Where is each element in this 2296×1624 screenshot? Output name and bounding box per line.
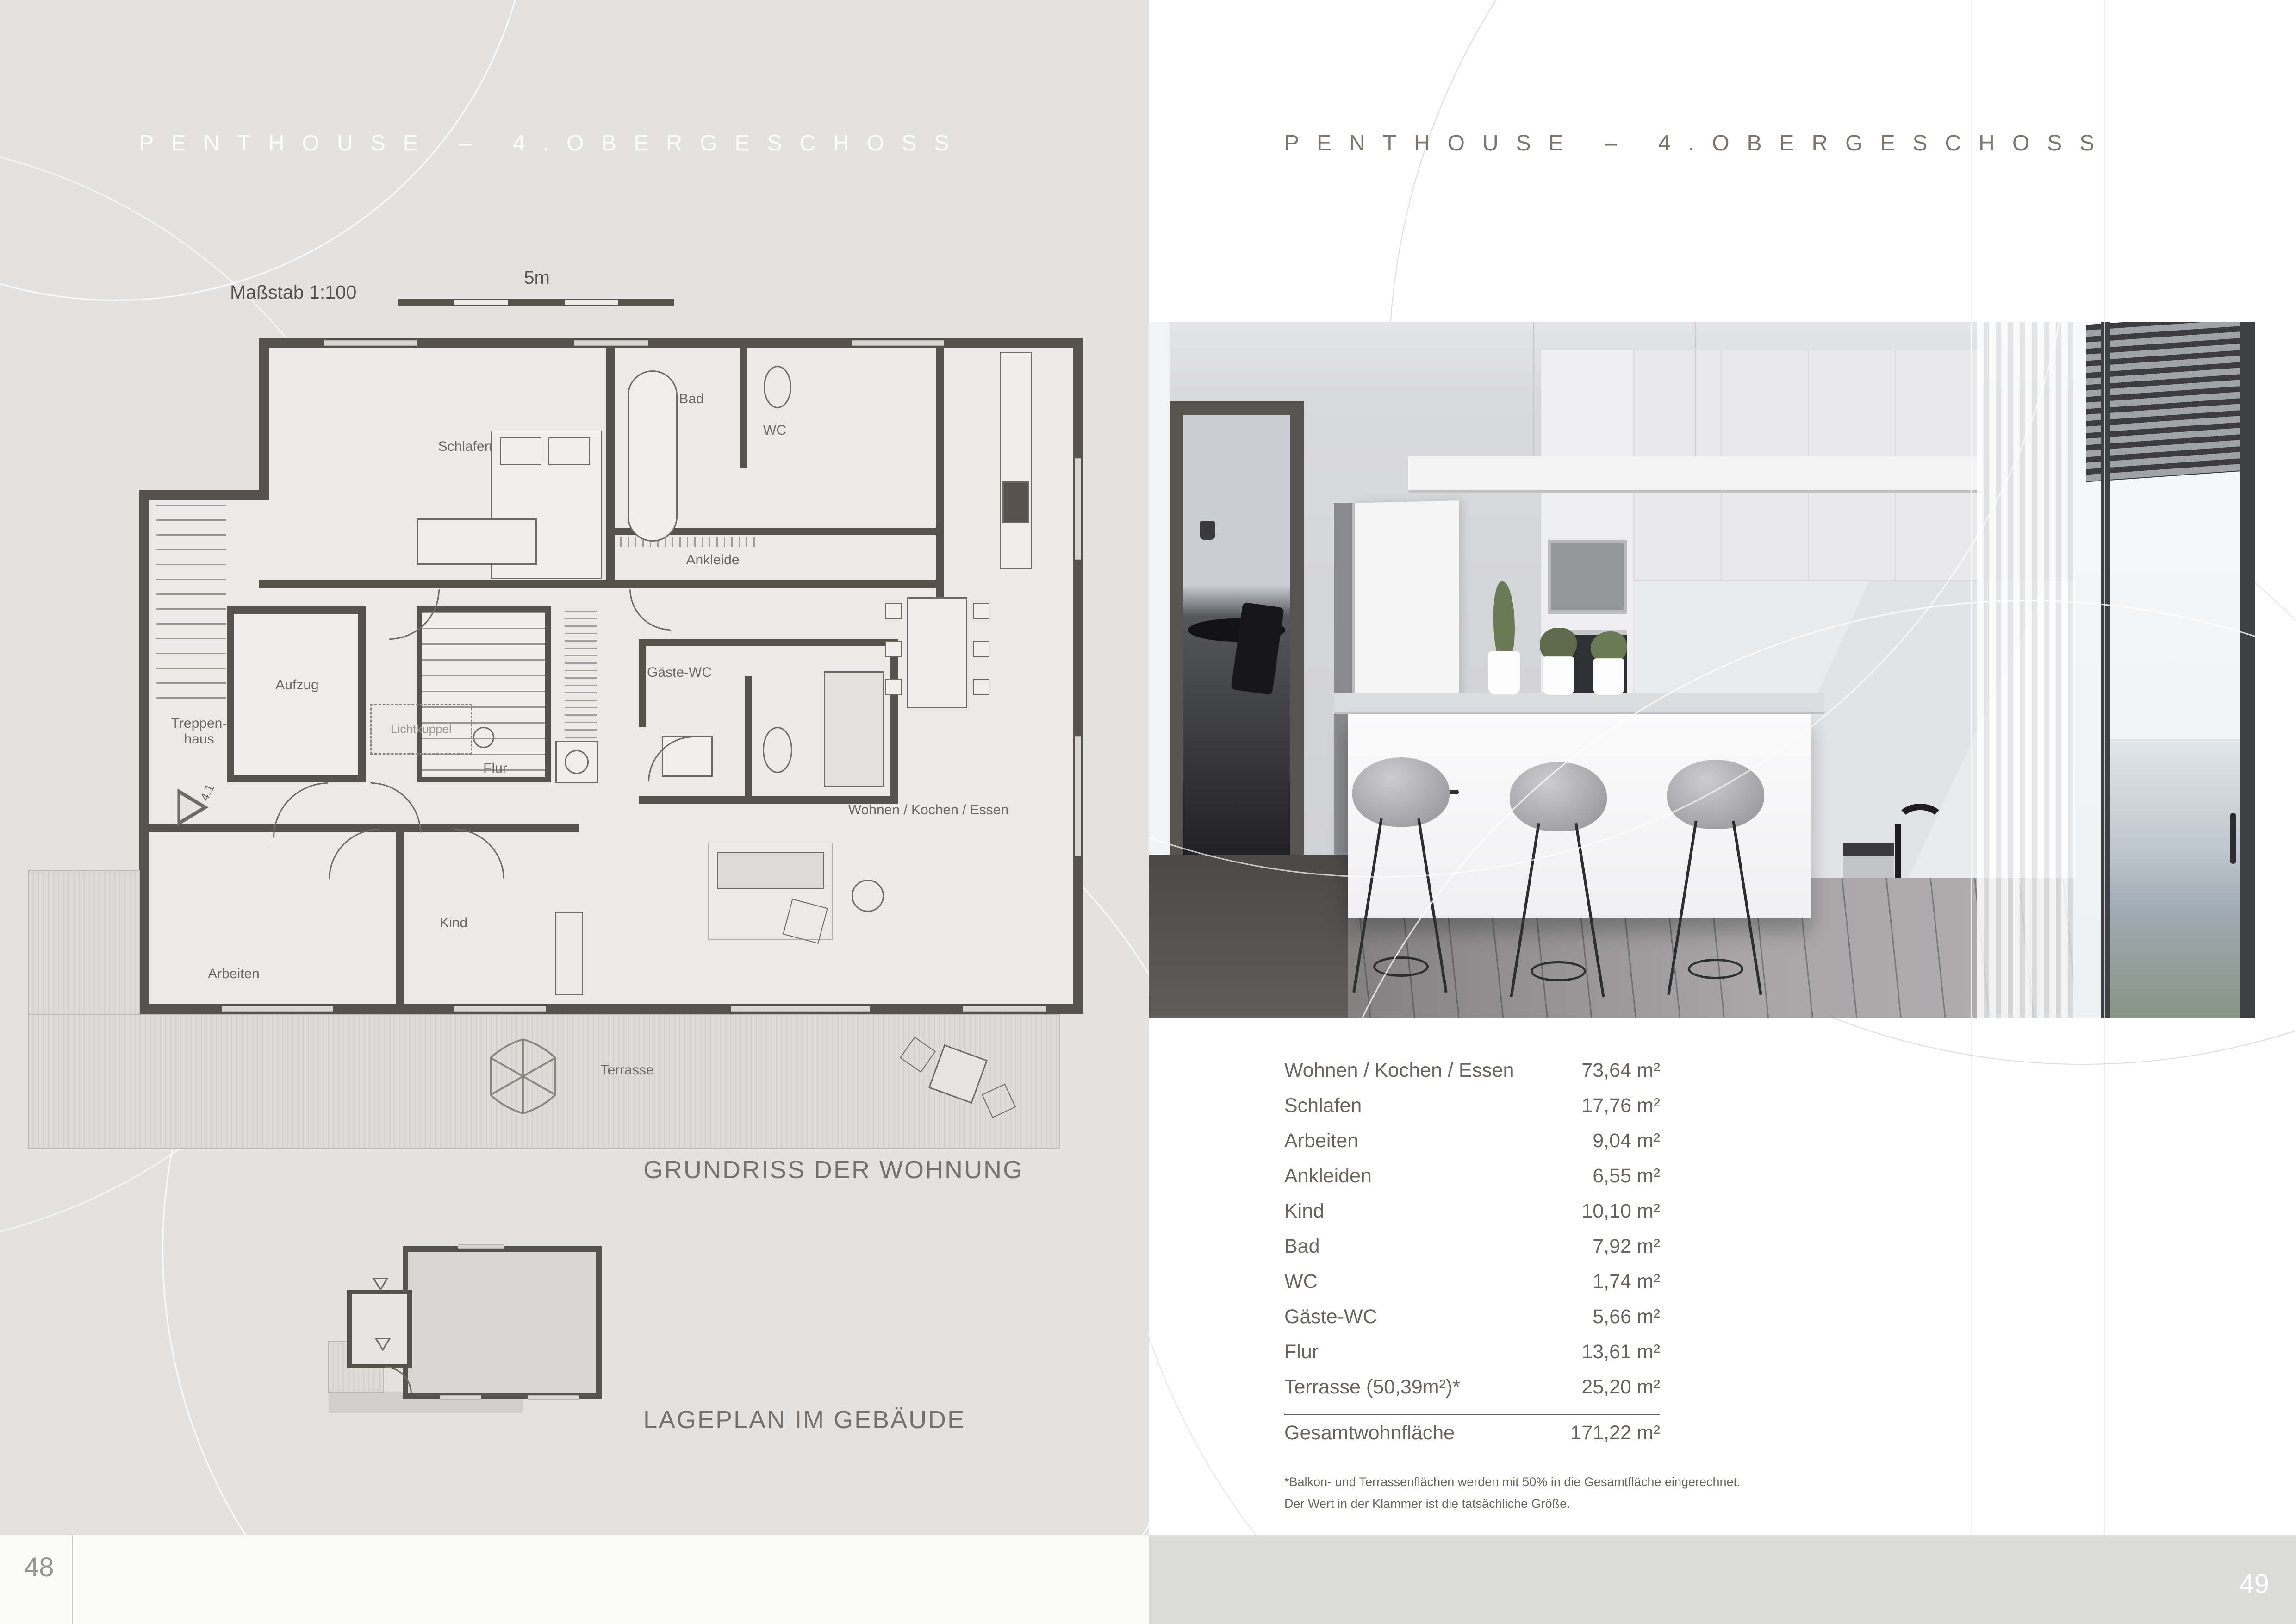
room-label-treppenhaus: Treppen-haus [162,716,236,747]
sofa [717,852,824,889]
pillow [548,437,590,465]
area-label: Gäste-WC [1284,1305,1377,1328]
area-row: Kind10,10 m² [1284,1200,1660,1235]
area-value: 10,10 m² [1581,1200,1660,1223]
area-label: Kind [1284,1200,1324,1223]
page-number: 48 [24,1552,54,1583]
area-value: 5,66 m² [1593,1305,1660,1328]
stool-seat [1667,760,1764,829]
area-value: 25,20 m² [1581,1376,1660,1399]
sheer-curtain [1977,322,2075,1018]
right-page: PENTHOUSE – 4.OBERGESCHOSS [1149,0,2296,1624]
footnote-line: *Balkon- und Terrassenflächen werden mit… [1284,1471,1741,1493]
brochure-spread: { "left_page": { "title": "PENTHOUSE – 4… [0,0,2296,1624]
window [458,1244,504,1249]
area-row: WC1,74 m² [1284,1270,1660,1305]
decorative-line [1971,322,1972,1018]
page-number: 49 [2239,1568,2269,1599]
chair [885,641,902,657]
area-label: Terrasse (50,39m²)* [1284,1376,1460,1399]
wall-segment [639,639,898,646]
penthouse-unit [403,1246,602,1399]
stool-footrest [1373,956,1429,977]
window [963,1006,1046,1012]
pendant-cord [1533,322,1534,461]
terrace-area [28,870,140,1015]
wall-segment [606,338,615,588]
window [1075,736,1081,856]
room-label-gaeste-wc: Gäste-WC [647,665,712,681]
stair-post [473,727,494,748]
elevator-shaft [227,606,366,782]
room-areas-table: Wohnen / Kochen / Essen73,64 m² Schlafen… [1284,1059,1660,1455]
room-label-wohnen: Wohnen / Kochen / Essen [848,802,1008,818]
wall-segment [890,639,898,804]
window [1075,458,1081,560]
window [324,340,417,346]
decorative-line [1971,0,1972,322]
room-label-arbeiten: Arbeiten [208,966,260,982]
wall-segment [396,824,404,1004]
bar-stool [1662,760,1769,1018]
bathtub [628,370,678,542]
window-frame-post [2240,322,2255,1018]
umbrella-icon [477,1030,569,1123]
scale-distance-label: 5m [481,268,592,288]
window [574,340,648,346]
faucet-arc [1895,804,1946,843]
chair [973,641,989,657]
page-title: PENTHOUSE – 4.OBERGESCHOSS [139,131,966,156]
window [440,1395,481,1400]
area-value: 1,74 m² [1593,1270,1660,1293]
total-row: Gesamtwohnfläche171,22 m² [1284,1415,1660,1455]
toilet [764,366,791,408]
total-value: 171,22 m² [1570,1422,1660,1444]
window-handle [2230,813,2236,864]
terrace-door [731,1006,870,1012]
footer-band [0,1535,1149,1624]
area-label: Flur [1284,1341,1319,1363]
area-value: 9,04 m² [1593,1130,1660,1152]
stool-seat [1352,757,1450,827]
kitchen-photo [1149,322,2255,1018]
dining-table [907,597,967,708]
scale-segment [398,299,454,306]
island-countertop [1334,693,1824,714]
window [454,1006,546,1012]
scale-segment [509,299,564,306]
area-row: Ankleiden6,55 m² [1284,1165,1660,1200]
stair-core [347,1290,412,1368]
shower [824,671,884,787]
room-label-kind: Kind [440,915,467,931]
stove [1002,481,1029,523]
kitchen-island [417,518,537,565]
chair [973,603,989,619]
area-row: Bad7,92 m² [1284,1235,1660,1270]
area-value: 73,64 m² [1581,1059,1660,1082]
kitchen-counter [1000,352,1032,569]
area-value: 13,61 m² [1581,1341,1660,1363]
microwave [1548,540,1627,614]
area-label: WC [1284,1270,1318,1293]
area-label: Schlafen [1284,1094,1362,1117]
area-value: 6,55 m² [1593,1165,1660,1187]
wall-segment [745,676,752,796]
window-blinds [2086,322,2255,482]
pendant-light-panel [1408,456,1982,493]
scale-label: Maßstab 1:100 [230,281,357,303]
room-label-schlafen: Schlafen [438,439,492,455]
wall-segment [639,639,646,727]
area-label: Bad [1284,1235,1320,1258]
island-pot [1593,658,1624,695]
total-label: Gesamtwohnfläche [1284,1422,1455,1444]
chair [973,679,989,695]
area-row: Flur13,61 m² [1284,1341,1660,1376]
area-row: Gäste-WC5,66 m² [1284,1305,1660,1341]
window-mullion [2101,322,2110,1018]
decorative-line [2104,1018,2105,1535]
window [222,1006,333,1012]
outdoor-view [2102,739,2255,1018]
floorplan-caption: GRUNDRISS DER WOHNUNG [643,1156,1024,1184]
scale-segment [564,299,619,306]
wall-segment [139,490,149,1014]
bar-stool [1505,762,1612,1018]
decorative-line [1971,1018,1972,1535]
terrace-label: Terrasse [600,1062,653,1078]
stool-footrest [1531,961,1586,981]
window [852,340,944,346]
area-row: Wohnen / Kochen / Essen73,64 m² [1284,1059,1660,1094]
footer-rule [72,1535,73,1624]
scale-segment [454,299,509,306]
left-page: PENTHOUSE – 4.OBERGESCHOSS Maßstab 1:100… [0,0,1149,1624]
area-row: Schlafen17,76 m² [1284,1094,1660,1130]
decorative-line [2104,0,2105,322]
room-label-bad: Bad [679,391,703,407]
window [528,1395,579,1400]
area-label: Wohnen / Kochen / Essen [1284,1059,1514,1082]
wall-segment [1073,338,1083,1014]
decorative-line [2104,322,2105,1018]
room-label-wc: WC [763,423,786,438]
area-row: Terrasse (50,39m²)*25,20 m² [1284,1376,1660,1411]
area-value: 7,92 m² [1593,1235,1660,1258]
page-title: PENTHOUSE – 4.OBERGESCHOSS [1284,131,2112,156]
pendant-lamp [1200,521,1215,540]
stairwell [417,606,551,782]
guest-toilet [763,727,792,773]
footnote-line: Der Wert in der Klammer ist die tatsächl… [1284,1493,1570,1515]
island-pot [1488,651,1520,695]
siteplan-caption: LAGEPLAN IM GEBÄUDE [643,1405,965,1434]
wall-segment [259,338,269,500]
entry-triangle [373,1278,388,1291]
tv-board [555,912,583,995]
bar-stool [1348,757,1454,1017]
island-pot [1542,656,1574,695]
wall-segment [740,338,747,468]
pillow [500,437,541,465]
area-row: Arbeiten9,04 m² [1284,1130,1660,1165]
chair [885,679,902,695]
area-label: Ankleiden [1284,1165,1372,1187]
area-value: 17,76 m² [1581,1094,1660,1117]
entry-triangle [375,1338,391,1351]
floor-plan: 4.1 Schlafen Bad WC Ankleide Aufzug Trep… [130,319,1092,1023]
dining-floor-shadow [1149,855,1348,1018]
footer-band [1149,1535,2296,1624]
staircase [156,505,226,704]
area-label: Arbeiten [1284,1130,1358,1152]
room-label-ankleide: Ankleide [686,552,739,568]
wall-segment [139,490,269,500]
site-plan [324,1230,620,1415]
scale-segment [619,299,674,306]
chair [885,603,902,619]
pendant-cord [1695,322,1696,461]
side-table [852,880,884,912]
scale-bar [398,299,674,306]
stool-footrest [1688,959,1743,979]
washer-drum [565,750,589,774]
room-label-aufzug: Aufzug [275,677,318,693]
skylight-label: Lichtkuppel [391,722,452,737]
wall-segment [259,580,944,588]
stool-seat [1510,762,1607,831]
room-label-flur: Flur [483,761,507,776]
